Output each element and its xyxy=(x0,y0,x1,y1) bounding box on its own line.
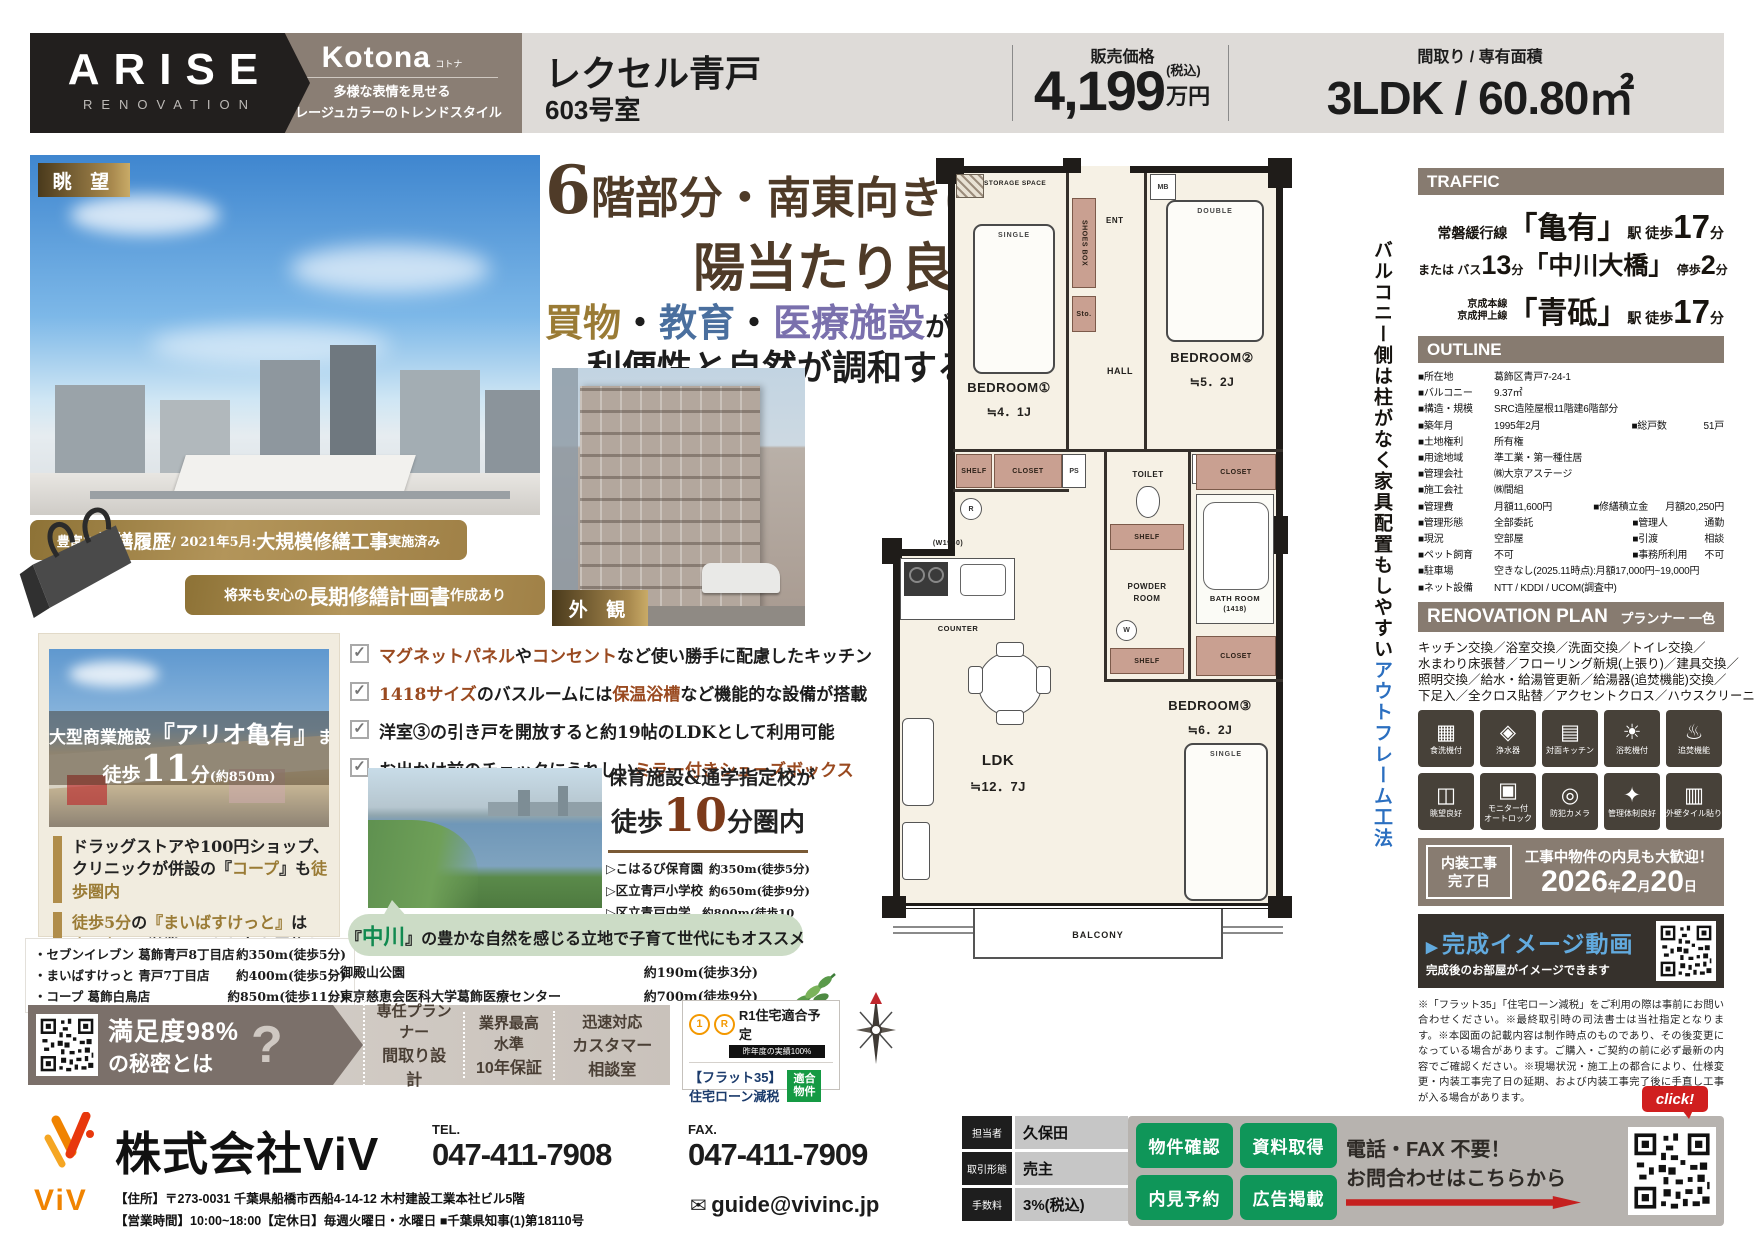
cta-button[interactable]: 物件確認 xyxy=(1136,1123,1233,1168)
ario-caption-2: 徒歩11分(約850m) xyxy=(49,747,329,790)
school-distance: 約650m(徒歩9分) xyxy=(709,880,810,902)
completion-label: 内装工事 完了日 xyxy=(1426,845,1512,899)
header-divider-1 xyxy=(1012,45,1013,121)
ldk-size: ≒12．7J xyxy=(938,776,1058,795)
outline-row: ■管理費月額11,600円■修繕積立金月額20,250円 xyxy=(1418,500,1724,516)
store-row: ・コープ 葛飾白鳥店約850m(徒歩11分) xyxy=(34,986,346,1007)
cta-arrow xyxy=(1346,1196,1581,1209)
feature-item: ✓ 1418サイズのバスルームには保温浴槽など機能的な設備が搭載 xyxy=(350,680,810,705)
school-distance: 約350m(徒歩5分) xyxy=(709,858,810,880)
feature-item: ✓ マグネットパネルやコンセントなど使い勝手に配慮したキッチン xyxy=(350,642,810,667)
closet2-label: CLOSET xyxy=(1196,454,1276,490)
staff-label: 取引形態 xyxy=(962,1152,1012,1185)
satisfaction-point: 迅速対応 カスタマー相談室 xyxy=(553,1011,671,1080)
outline-row: ■ペット飼育不可■事務所利用不可 xyxy=(1418,548,1724,564)
price-value: 4,199 xyxy=(1034,59,1164,122)
r1-sub: 昨年度の実績100% xyxy=(729,1045,825,1058)
counter-kitchen-icon: ▤ 対面キッチン xyxy=(1542,710,1598,767)
mb-label: MB xyxy=(1150,174,1176,200)
price-unit: 万円 xyxy=(1166,79,1210,111)
staff-label: 手数料 xyxy=(962,1188,1012,1221)
repair-plan-banner: 将来も安心の長期修繕計画書作成あり xyxy=(185,575,545,615)
store-name: ・コープ 葛飾白鳥店 xyxy=(34,986,150,1007)
store-name: ・まいばすけっと 青戸7丁目店 xyxy=(34,965,210,986)
plan-value: 3LDK / 60.80㎡ xyxy=(1245,62,1715,128)
flat35-line1: 【フラット35】 xyxy=(689,1067,781,1086)
contact-panel: 物件確認 資料取得 内見予約 広告掲載 電話・FAX 不要！ お問合わせはこちら… xyxy=(1128,1116,1724,1226)
dishwasher-icon: ▦ 食洗機付 xyxy=(1418,710,1474,767)
shoes-box-label: SHOES BOX xyxy=(1072,198,1096,288)
staff-label: 担当者 xyxy=(962,1116,1012,1149)
satisfaction-qr[interactable] xyxy=(36,1014,98,1076)
outline-row: ■管理会社㈱大京アステージ xyxy=(1418,467,1724,483)
outline-row: ■土地権利所有権 xyxy=(1418,435,1724,451)
company-hours: 【営業時間】10:00~18:00【定休日】毎週火曜日・水曜日 ■千葉県知事(1… xyxy=(115,1210,584,1229)
fax-block: FAX. 047-411-7909 xyxy=(688,1122,867,1173)
shopping-bullet: ドラッグストアや100円ショップ、クリニックが併設の『コープ』も徒歩圏内 xyxy=(53,836,333,903)
staff-value: 3%(税込) xyxy=(1015,1188,1128,1221)
closet3-label: CLOSET xyxy=(1196,636,1276,676)
checkmark-icon: ✓ xyxy=(350,758,369,777)
tel-number: 047-411-7908 xyxy=(432,1137,611,1172)
satisfaction-line1: 満足度98% xyxy=(108,1012,239,1048)
nature-spot-row: ▷御殿山公園約190m(徒歩3分) xyxy=(330,962,758,986)
fax-number: 047-411-7909 xyxy=(688,1137,867,1172)
company-name: 株式会社ViV xyxy=(115,1118,379,1184)
hall-label: HALL xyxy=(1100,366,1140,376)
cta-buttons: 物件確認 資料取得 内見予約 広告掲載 xyxy=(1136,1123,1338,1220)
renovation-planner: プランナー 一色 xyxy=(1620,608,1715,627)
bedroom1-bed: SINGLE xyxy=(973,224,1055,374)
feature-text: 洋室③の引き戸を開放すると約19帖のLDKとして利用可能 xyxy=(379,718,835,743)
outline-row: ■駐車場空きなし(2025.11時点):月額17,000円~19,000円 xyxy=(1418,564,1724,580)
shelf-label: SHELF xyxy=(956,454,992,488)
exterior-tag-label: 外 観 xyxy=(569,595,632,622)
renovation-line: 水まわり床張替／フローリング新規(上張り)／建具交換／ xyxy=(1418,656,1724,672)
store-row: ・セブンイレブン 葛飾青戸8丁目店約350m(徒歩5分) xyxy=(34,944,346,965)
powder-room-label1: POWDER xyxy=(1108,582,1186,591)
good-view-icon: ◫ 眺望良好 xyxy=(1418,773,1474,830)
cta-button[interactable]: 内見予約 xyxy=(1136,1175,1233,1220)
cta-button[interactable]: 資料取得 xyxy=(1240,1123,1337,1168)
company-address: 【住所】〒273-0031 千葉県船橋市西船4-14-12 木村建設工業本社ビル… xyxy=(115,1188,525,1207)
renovation-header-label: RENOVATION PLAN xyxy=(1427,606,1608,628)
completion-box: 内装工事 完了日 工事中物件の内見も大歓迎！ 2026年2月20日 xyxy=(1418,838,1724,906)
shelf2-label: SHELF xyxy=(1110,524,1184,550)
outline-header: OUTLINE xyxy=(1418,336,1724,363)
r1-logo-icon2: R xyxy=(714,1014,735,1035)
satisfaction-banner: 満足度98% の秘密とは ? 専任プランナー 間取り設計 業界最高水準 10年保… xyxy=(28,1005,670,1085)
outframe-text-blue: アウトフレーム工法 xyxy=(1371,660,1393,849)
sto-label: Sto. xyxy=(1072,296,1096,332)
satisfaction-point: 専任プランナー 間取り設計 xyxy=(363,1000,463,1090)
bedroom1-size: ≒4．1J xyxy=(953,403,1065,420)
outline-table: ■所在地葛飾区青戸7-24-1■バルコニー9.37㎡■構造・規模SRC造陸屋根1… xyxy=(1418,370,1724,597)
compass-icon xyxy=(852,990,900,1068)
school-row: ▷区立青戸小学校約650m(徒歩9分) xyxy=(606,880,810,902)
school-name: ▷こはるび保育園 xyxy=(606,858,703,880)
equipment-icons: ▦ 食洗機付 ◈ 浄水器 ▤ 対面キッチン ☀ 浴乾機付 ♨ 追焚機能 ◫ 眺望… xyxy=(1418,710,1726,830)
bath-dryer-icon: ☀ 浴乾機付 xyxy=(1604,710,1660,767)
satisfaction-left: 満足度98% の秘密とは ? xyxy=(28,1005,363,1085)
completion-date: 2026年2月20日 xyxy=(1522,865,1716,899)
video-box: ▶ 完成イメージ動画 完成後のお部屋がイメージできます xyxy=(1418,914,1724,988)
staff-row: 取引形態 売主 xyxy=(962,1152,1128,1185)
ps1-label: PS xyxy=(1062,454,1086,488)
bedroom2-label: BEDROOM② xyxy=(1148,350,1276,366)
property-room: 603号室 xyxy=(545,90,640,127)
nature-bubble: 『中川』の豊かな自然を感じる立地で子育て世代にもオススメ xyxy=(348,914,803,956)
floor-plan: STORAGE SPACE SHOES BOX ENT Sto. HALL MB… xyxy=(878,158,1348,988)
bathroom-size: (1418) xyxy=(1196,606,1274,613)
renovation-line: キッチン交換／浴室交換／洗面交換／トイレ交換／ xyxy=(1418,640,1724,656)
closet1-label: CLOSET xyxy=(994,454,1062,488)
bedroom2-size: ≒5．2J xyxy=(1148,373,1276,390)
feature-text: 1418サイズのバスルームには保温浴槽など機能的な設備が搭載 xyxy=(379,680,867,705)
water-purifier-icon: ◈ 浄水器 xyxy=(1480,710,1536,767)
ario-caption-1: 大型商業施設『アリオ亀有』まで xyxy=(49,715,329,750)
mail-icon: ✉ xyxy=(690,1195,707,1217)
fit-badge: 適合物件 xyxy=(787,1070,821,1102)
outline-row: ■現況空部屋■引渡相談 xyxy=(1418,532,1724,548)
ario-photo: 大型商業施設『アリオ亀有』まで 徒歩11分(約850m) xyxy=(49,649,329,827)
staff-value: 久保田 xyxy=(1015,1116,1128,1149)
r1-logo-icon: 1 xyxy=(689,1014,710,1035)
traffic-line3: 京成本線 京成押上線「青砥」駅 徒歩17分 xyxy=(1418,288,1724,332)
shopping-card: 大型商業施設『アリオ亀有』まで 徒歩11分(約850m) ドラッグストアや100… xyxy=(38,633,340,937)
arise-logo: ARISE RENOVATION xyxy=(30,33,310,133)
outline-row: ■バルコニー9.37㎡ xyxy=(1418,386,1724,402)
feature-text: マグネットパネルやコンセントなど使い勝手に配慮したキッチン xyxy=(379,642,872,667)
school-row: ▷こはるび保育園約350m(徒歩5分) xyxy=(606,858,810,880)
balcony-label: BALCONY xyxy=(973,930,1223,940)
flat35-line2: 住宅ローン減税 xyxy=(689,1086,781,1105)
security-camera-icon: ◎ 防犯カメラ xyxy=(1542,773,1598,830)
reheat-bath-icon: ♨ 追焚機能 xyxy=(1666,710,1722,767)
counter-label: COUNTER xyxy=(908,624,1008,633)
email-block[interactable]: ✉ guide@vivinc.jp xyxy=(690,1192,879,1218)
cta-line1: 電話・FAX 不要！ xyxy=(1346,1133,1620,1162)
store-row: ・まいばすけっと 青戸7丁目店約400m(徒歩5分) xyxy=(34,965,346,986)
ent-label: ENT xyxy=(1106,216,1124,225)
exterior-photo-tag: 外 観 xyxy=(552,590,648,626)
binder-clip-icon xyxy=(3,485,165,626)
traffic-header-label: TRAFFIC xyxy=(1427,172,1500,192)
viv-logo-text: ViV xyxy=(34,1184,88,1218)
feature-item: ✓ 洋室③の引き戸を開放すると約19帖のLDKとして利用可能 xyxy=(350,718,810,743)
powder-room-label2: ROOM xyxy=(1108,594,1186,603)
staff-table: 担当者 久保田 取引形態 売主 手数料 3%(税込) xyxy=(962,1116,1128,1224)
outframe-vertical-text: バルコニー側は柱がなく家具配置もしやすいアウトフレーム工法 xyxy=(1352,240,1396,865)
renovation-line: 照明交換／給水・給湯管更新／給湯器(追焚機能)交換／ xyxy=(1418,672,1724,688)
spot-distance: 約190m(徒歩3分) xyxy=(644,962,758,986)
renovation-lines: キッチン交換／浴室交換／洗面交換／トイレ交換／ 水まわり床張替／フローリング新規… xyxy=(1418,640,1724,704)
storage-space-label: STORAGE SPACE xyxy=(984,180,1046,187)
header-divider-2 xyxy=(1228,45,1229,121)
click-badge[interactable]: click! xyxy=(1642,1086,1708,1112)
outline-row: ■構造・規模SRC造陸屋根11階建6階部分 xyxy=(1418,402,1724,418)
tel-label: TEL. xyxy=(432,1122,611,1137)
view-photo: 眺 望 xyxy=(30,155,540,515)
outline-row: ■施工会社㈱間組 xyxy=(1418,483,1724,499)
toilet-label: TOILET xyxy=(1110,470,1186,479)
arise-logo-line2: RENOVATION xyxy=(30,97,310,112)
traffic-header: TRAFFIC xyxy=(1418,168,1724,195)
brand-name: Kotona xyxy=(322,41,431,74)
click-badge-label: click! xyxy=(1656,1091,1694,1108)
exterior-photo: 外 観 xyxy=(552,368,805,626)
school-name: ▷区立青戸小学校 xyxy=(606,880,703,902)
nature-bubble-text: 『中川』の豊かな自然を感じる立地で子育て世代にもオススメ xyxy=(346,920,805,951)
satisfaction-point: 業界最高水準 10年保証 xyxy=(463,1012,552,1078)
ldk-label: LDK xyxy=(938,752,1058,769)
email-address: guide@vivinc.jp xyxy=(711,1192,879,1217)
price-value-row: 4,199(税込)万円 xyxy=(1022,58,1222,123)
outline-row: ■用途地域準工業・第一種住居 xyxy=(1418,451,1724,467)
cta-line2: お問合わせはこちらから xyxy=(1346,1162,1620,1191)
brand-sub2: グレージュカラーのトレンドスタイル xyxy=(262,102,522,121)
outline-row: ■ネット設備NTT / KDDI / UCOM(調査中) xyxy=(1418,581,1724,597)
checkmark-icon: ✓ xyxy=(350,644,369,663)
arise-logo-line1: ARISE xyxy=(30,45,310,95)
outline-row: ■所在地葛飾区青戸7-24-1 xyxy=(1418,370,1724,386)
video-title: 完成イメージ動画 xyxy=(1442,931,1634,957)
satisfaction-line2: の秘密とは xyxy=(108,1048,239,1078)
cta-button[interactable]: 広告掲載 xyxy=(1240,1175,1337,1220)
bathroom-label: BATH ROOM xyxy=(1196,594,1274,603)
store-distance: 約850m(徒歩11分) xyxy=(227,986,346,1007)
monitor-autolock-icon: ▣ モニター付 オートロック xyxy=(1480,773,1536,830)
tel-block: TEL. 047-411-7908 xyxy=(432,1122,611,1173)
staff-row: 担当者 久保田 xyxy=(962,1116,1128,1149)
bedroom2-bed: DOUBLE xyxy=(1166,200,1264,342)
washer-label: W xyxy=(1116,620,1137,641)
tile-wall-icon: ▥ 外壁タイル貼り xyxy=(1666,773,1722,830)
view-photo-tag: 眺 望 xyxy=(38,163,130,197)
outline-row: ■築年月1995年2月■総戸数51戸 xyxy=(1418,419,1724,435)
outline-header-label: OUTLINE xyxy=(1427,340,1502,360)
outline-row: ■管理形態全部委託■管理人通勤 xyxy=(1418,516,1724,532)
price-tax: (税込) xyxy=(1166,60,1210,79)
fax-label: FAX. xyxy=(688,1122,867,1137)
bedroom3-label: BEDROOM③ xyxy=(1144,698,1276,714)
traffic-line1: 常磐緩行線「亀有」駅 徒歩17分 xyxy=(1418,203,1724,247)
education-walk: 徒歩10分圏内 xyxy=(608,788,808,842)
outframe-text-black: バルコニー側は柱がなく家具配置もしやすい xyxy=(1371,240,1393,660)
shelf3-label: SHELF xyxy=(1110,648,1184,674)
brand-kana: コトナ xyxy=(435,59,462,69)
r1-badge: 1 R R1住宅適合予定 昨年度の実績100% 【フラット35】 住宅ローン減税… xyxy=(682,1000,840,1090)
video-sub: 完成後のお部屋がイメージできます xyxy=(1426,962,1648,978)
education-underline xyxy=(608,850,808,853)
bedroom3-size: ≒6．2J xyxy=(1144,721,1276,738)
store-name: ・セブンイレブン 葛飾青戸8丁目店 xyxy=(34,944,235,965)
renovation-header: RENOVATION PLAN プランナー 一色 xyxy=(1418,602,1724,632)
traffic-line2: または バス13分「中川大橋」 停歩2分 xyxy=(1418,246,1724,282)
store-list: ・セブンイレブン 葛飾青戸8丁目店約350m(徒歩5分) ・まいばすけっと 青戸… xyxy=(25,938,355,1013)
video-qr[interactable] xyxy=(1656,921,1716,981)
spot-name: ▷御殿山公園 xyxy=(330,962,405,986)
bedroom1-label: BEDROOM① xyxy=(953,380,1065,396)
staff-row: 手数料 3%(税込) xyxy=(962,1188,1128,1221)
flyer-page: Kotona コトナ 多様な表情を見せる グレージュカラーのトレンドスタイル A… xyxy=(0,0,1754,1241)
view-tag-label: 眺 望 xyxy=(53,167,116,194)
staff-value: 売主 xyxy=(1015,1152,1128,1185)
satisfaction-points: 専任プランナー 間取り設計 業界最高水準 10年保証 迅速対応 カスタマー相談室 xyxy=(363,1005,670,1085)
question-mark: ? xyxy=(251,1015,283,1075)
river-photo xyxy=(368,768,602,908)
viv-logo-icon xyxy=(34,1112,104,1184)
r1-title: R1住宅適合予定 xyxy=(739,1005,833,1043)
education-title: 保育施設&通学指定校が xyxy=(608,763,808,790)
contact-qr[interactable] xyxy=(1628,1127,1716,1215)
play-icon: ▶ xyxy=(1426,939,1438,956)
bedroom3-bed: SINGLE xyxy=(1184,743,1268,901)
checkmark-icon: ✓ xyxy=(350,682,369,701)
refrigerator-label: R xyxy=(960,498,982,520)
checkmark-icon: ✓ xyxy=(350,720,369,739)
management-icon: ✦ 管理体制良好 xyxy=(1604,773,1660,830)
completion-headline: 工事中物件の内見も大歓迎！ xyxy=(1522,846,1716,867)
kitchen-width-label: (W1950) xyxy=(908,540,988,547)
renovation-line: 下足入／全クロス貼替／アクセントクロス／ハウスクリーニング xyxy=(1418,688,1724,704)
